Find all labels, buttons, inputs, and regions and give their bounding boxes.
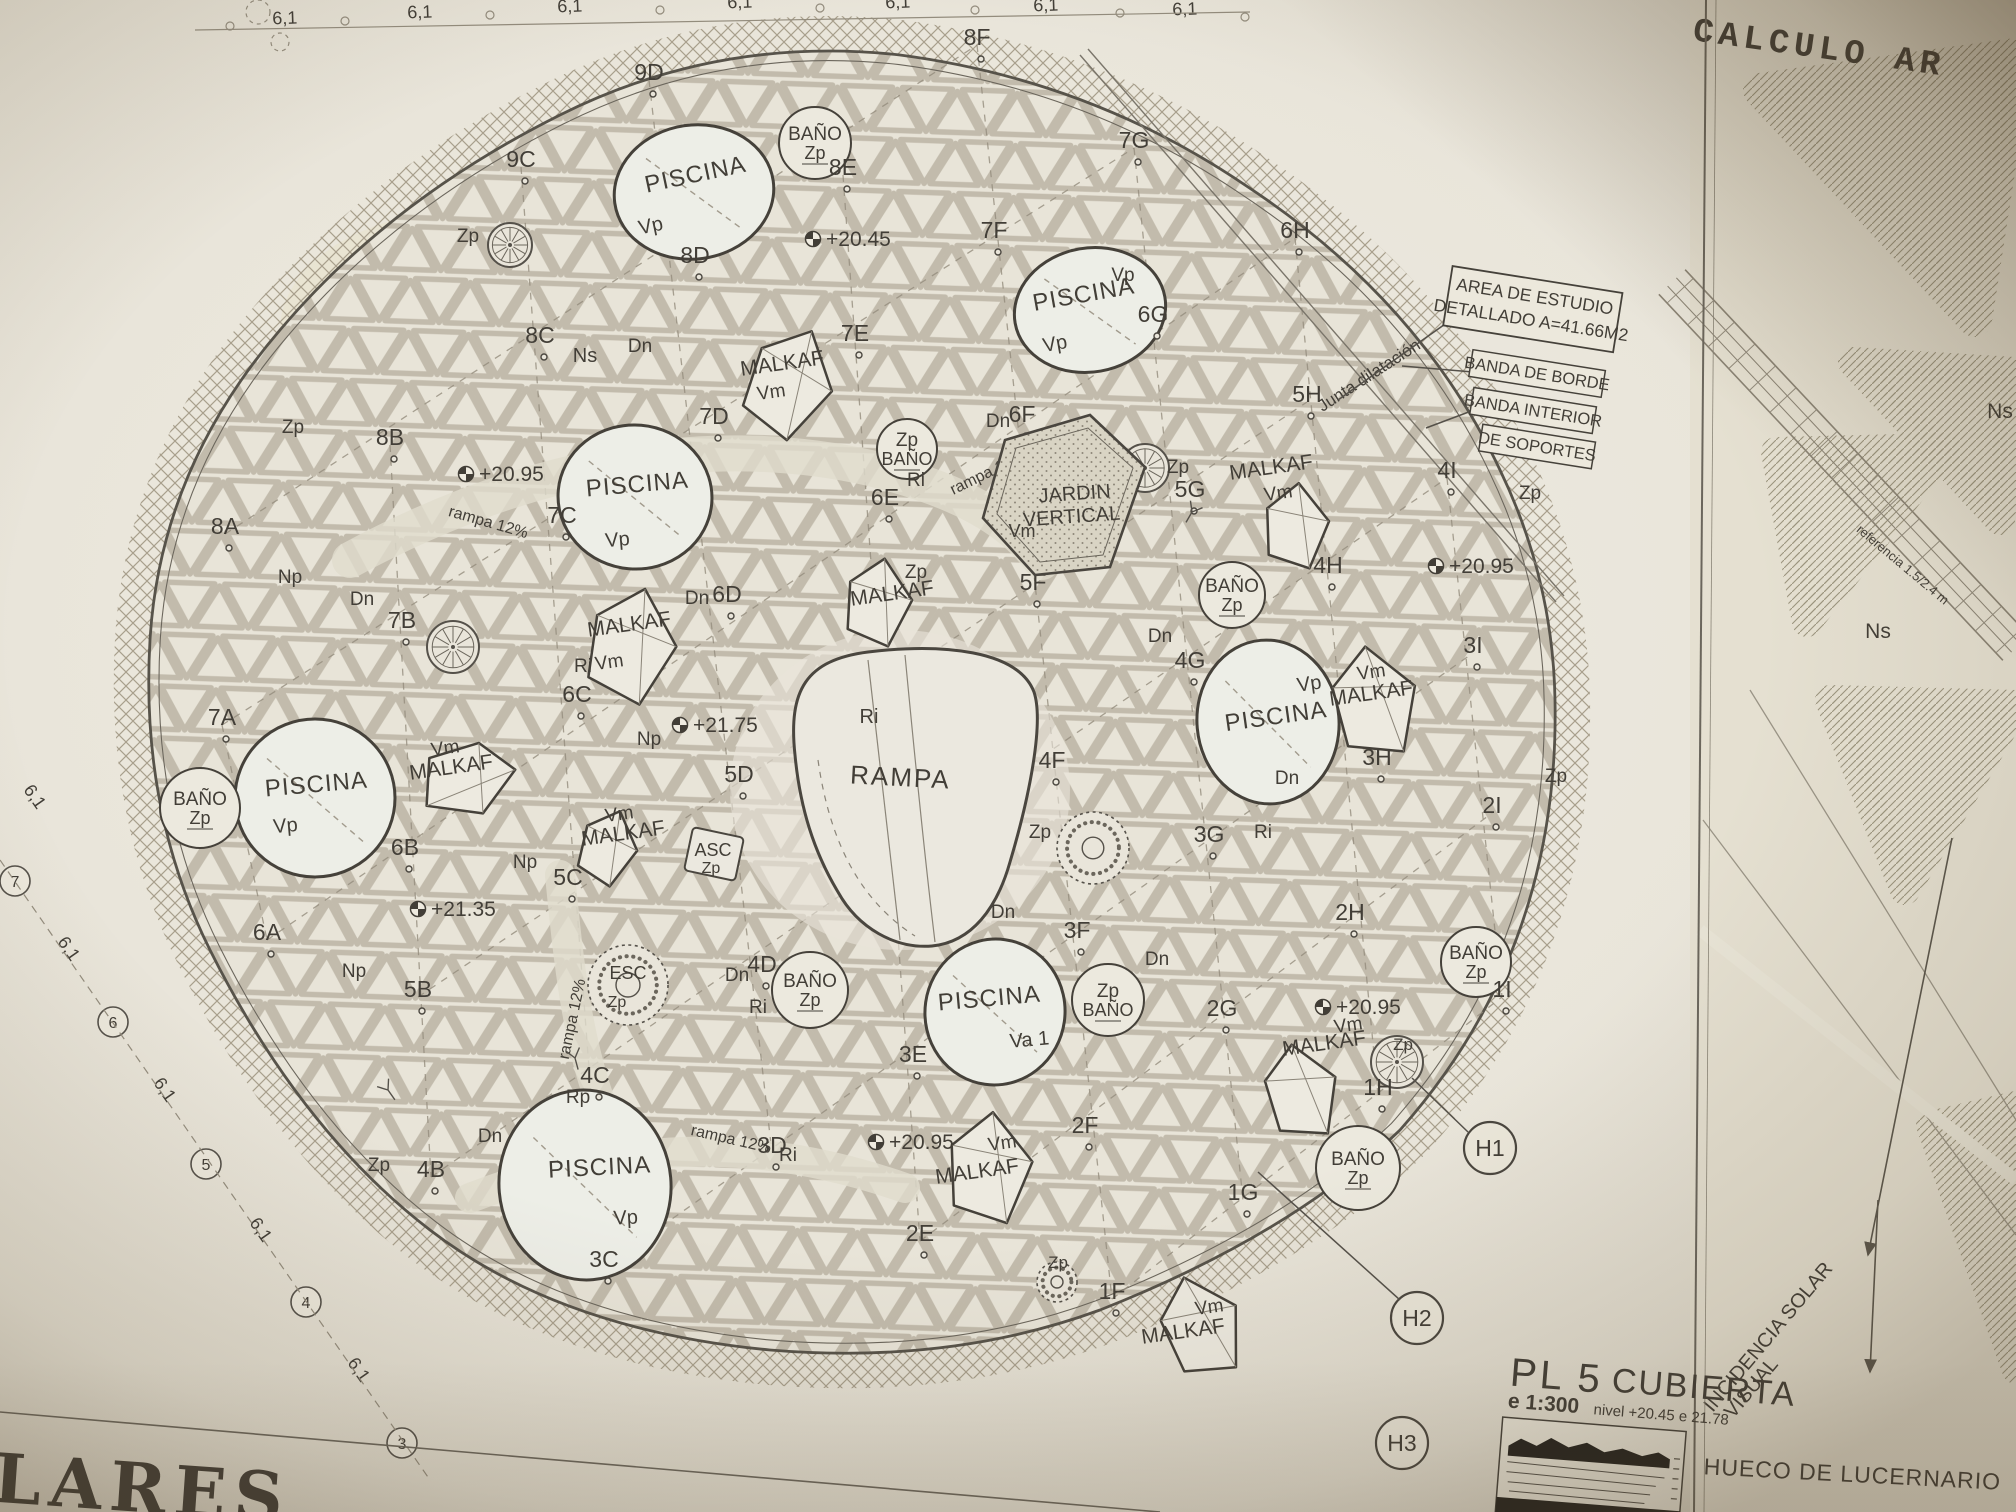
- code-note: Zp: [1029, 822, 1051, 843]
- grid-point-label: 2I: [1482, 792, 1501, 818]
- grid-point-dot: [696, 274, 702, 280]
- code-note: Zp: [368, 1155, 390, 1176]
- dimension-label: 6,1: [885, 0, 911, 12]
- right-detail-panel: CALCULO AR INCIDENCIA SOLAR VISUAL HUECO…: [1659, 0, 2016, 1512]
- code-note: Zp: [1545, 766, 1567, 787]
- level-value: +20.45: [826, 228, 891, 251]
- grid-point-label: 6D: [712, 581, 741, 607]
- bano-tag: BAÑO: [1082, 999, 1133, 1020]
- level-value: +21.75: [693, 714, 758, 737]
- h-marker: H3: [1376, 1417, 1428, 1469]
- malkaf-vm-tag: Vm: [1356, 660, 1387, 685]
- grid-point-dot: [391, 456, 397, 462]
- grid-point-dot: [522, 178, 528, 184]
- code-note: Zp: [1048, 1253, 1068, 1272]
- grid-axis-number: 5: [202, 1157, 211, 1174]
- code-note: Np: [637, 729, 661, 750]
- grid-point-label: 8B: [376, 424, 404, 450]
- plan-canvas: CALCULO AR INCIDENCIA SOLAR VISUAL HUECO…: [0, 0, 2016, 1512]
- h-marker-label: H3: [1387, 1430, 1416, 1456]
- bano-label: BAÑO: [1205, 575, 1259, 597]
- grid-point-label: 3G: [1194, 821, 1225, 847]
- grid-axis-bubble: 5: [191, 1149, 221, 1179]
- dotted-rosette-icon: [588, 945, 668, 1025]
- dimension-label: 6,1: [272, 8, 298, 29]
- grid-point-label: 9D: [634, 59, 663, 85]
- code-note: Np: [342, 961, 366, 982]
- code-note: Zp: [1393, 1035, 1413, 1054]
- code-note: Dn: [350, 589, 374, 610]
- grid-point-dot: [978, 56, 984, 62]
- pool-tag: Vp: [604, 528, 630, 552]
- pool-tag: Vp: [613, 1206, 639, 1229]
- grid-point-label: 7E: [841, 320, 869, 346]
- pool-tag: Vp: [1296, 671, 1323, 696]
- grid-point-label: 6E: [871, 484, 899, 510]
- dimension-tick: [1116, 9, 1124, 17]
- grid-point-label: 2G: [1207, 995, 1238, 1021]
- grid-point-label: 7F: [981, 217, 1008, 243]
- grid-point-dot: [1154, 333, 1160, 339]
- grid-point-label: 7D: [699, 403, 728, 429]
- esc-zp-tag: Zp: [608, 994, 627, 1011]
- grid-point-label: 6A: [253, 919, 282, 945]
- h-marker-label: H2: [1402, 1305, 1431, 1331]
- dimension-label: 6,1: [407, 2, 433, 23]
- grid-point-dot: [1329, 584, 1335, 590]
- grid-point-label: 6F: [1009, 401, 1036, 427]
- code-note: Ns: [1987, 400, 2013, 423]
- esc-label: ESC: [609, 963, 646, 983]
- dimension-tick: [656, 6, 664, 14]
- pool-tag: Vp: [1041, 331, 1069, 357]
- level-value: +20.95: [1449, 555, 1514, 578]
- dimension-label: 6,1: [1033, 0, 1059, 15]
- bano-tag: Zp: [1221, 595, 1242, 615]
- dimension-tick: [816, 4, 824, 12]
- grid-point-dot: [763, 983, 769, 989]
- dimension-tick: [486, 11, 494, 19]
- dimension-label: 6,1: [557, 0, 583, 16]
- grid-point-label: 8F: [964, 24, 991, 50]
- malkaf-vm-tag: Vm: [1263, 481, 1294, 506]
- grid-point-dot: [406, 866, 412, 872]
- code-note: Ri: [779, 1145, 797, 1166]
- grid-point-label: 4G: [1175, 647, 1206, 673]
- pool: PISCINAVp: [235, 719, 395, 877]
- code-note: Ri: [1254, 822, 1272, 843]
- level-value: +20.95: [1336, 996, 1401, 1019]
- malkaf-vm-tag: Vm: [1194, 1295, 1225, 1320]
- grid-point-dot: [268, 951, 274, 957]
- grid-axis-number: 3: [398, 1436, 407, 1453]
- sheet-scale: e 1:300: [1507, 1390, 1580, 1419]
- grid-point-dot: [650, 91, 656, 97]
- grid-point-dot: [419, 1008, 425, 1014]
- bano-label: Zp: [1097, 981, 1119, 1002]
- grid-point-dot: [223, 736, 229, 742]
- dimension-label: 6,1: [1172, 0, 1198, 19]
- grid-point-label: 4I: [1437, 457, 1456, 483]
- grid-point-label: 8C: [525, 322, 554, 348]
- pool-tag: Va 1: [1009, 1027, 1050, 1052]
- grid-point-label: 1G: [1228, 1179, 1259, 1205]
- dimension-tick: [341, 17, 349, 25]
- grid-point-label: 4H: [1313, 552, 1342, 578]
- dimension-tick: [226, 22, 234, 30]
- dotted-rosette-icon: [1057, 812, 1129, 884]
- grid-point-dot: [1086, 1144, 1092, 1150]
- grid-axis-bubble: 3: [387, 1428, 417, 1458]
- grid-point-dot: [1493, 824, 1499, 830]
- grid-point-dot: [844, 186, 850, 192]
- grid-point-label: 4C: [580, 1062, 609, 1088]
- grid-point-label: 5D: [724, 761, 753, 787]
- grid-point-dot: [1244, 1211, 1250, 1217]
- bano-tag: Zp: [1465, 962, 1486, 982]
- grid-point-dot: [1113, 1310, 1119, 1316]
- grid-point-dot: [995, 249, 1001, 255]
- code-note: Dn: [1145, 949, 1169, 970]
- grid-point-label: 7B: [388, 607, 416, 633]
- code-note: Dn: [685, 588, 709, 609]
- grid-point-dot: [1351, 931, 1357, 937]
- wheel-rosette-icon: [427, 621, 479, 673]
- bano-tag: Zp: [189, 808, 210, 828]
- jardin-vm-tag: Vm: [1009, 521, 1036, 541]
- grid-point-dot: [1223, 1027, 1229, 1033]
- code-note: Np: [278, 567, 302, 588]
- code-note: Rp: [566, 1087, 590, 1108]
- grid-point-dot: [1135, 159, 1141, 165]
- code-note: Zp: [457, 226, 479, 247]
- malkaf-vm-tag: Vm: [594, 650, 625, 675]
- code-note: Dn: [725, 965, 749, 986]
- grid-point-dot: [432, 1188, 438, 1194]
- malkaf-vm-tag: Vm: [756, 380, 787, 405]
- rampa-label: RAMPA: [849, 759, 951, 794]
- level-value: +21.35: [431, 898, 496, 921]
- asc-feature: ASC Zp: [684, 827, 744, 881]
- dimension-tick: [1241, 13, 1249, 21]
- grid-point-label: 7G: [1119, 127, 1150, 153]
- dimension-label: 6,1: [150, 1074, 181, 1106]
- grid-point-dot: [914, 1073, 920, 1079]
- grid-point-label: 3I: [1463, 632, 1482, 658]
- grid-point-label: 5C: [553, 864, 582, 890]
- grid-point-dot: [1308, 413, 1314, 419]
- grid-point-label: 1F: [1099, 1278, 1126, 1304]
- grid-point-label: 6C: [562, 681, 591, 707]
- grid-point-dot: [1210, 853, 1216, 859]
- bano: BAÑOZp: [1199, 562, 1265, 628]
- bano-tag: BAÑO: [881, 448, 932, 469]
- sheet-title-partial: LARES: [0, 1439, 294, 1512]
- grid-point-label: 4D: [747, 951, 776, 977]
- grid-point-label: 3E: [899, 1041, 927, 1067]
- grid-point-dot: [1448, 489, 1454, 495]
- grid-point-label: 1I: [1492, 976, 1511, 1002]
- dimension-label: 6,1: [54, 933, 85, 965]
- grid-point-dot: [1078, 949, 1084, 955]
- grid-point-label: 2H: [1335, 899, 1364, 925]
- bano-label: BAÑO: [1449, 942, 1503, 964]
- code-note: Dn: [991, 902, 1015, 923]
- grid-point-dot: [578, 713, 584, 719]
- code-note: Dn: [1275, 768, 1299, 789]
- grid-point-label: 6G: [1138, 301, 1169, 327]
- grid-point-label: 2E: [906, 1220, 934, 1246]
- grid-point-label: 5G: [1175, 476, 1206, 502]
- grid-point-dot: [728, 613, 734, 619]
- grid-point-dot: [1053, 779, 1059, 785]
- code-note: Ns: [1865, 620, 1891, 643]
- bano-label: BAÑO: [788, 123, 842, 145]
- level-value: +20.95: [889, 1131, 954, 1154]
- grid-point-dot: [1034, 601, 1040, 607]
- grid-point-dot: [541, 354, 547, 360]
- code-note: Zp: [1167, 457, 1189, 478]
- bano-label: BAÑO: [1331, 1148, 1385, 1170]
- code-note: Ri: [574, 656, 592, 677]
- grid-point-dot: [921, 1252, 927, 1258]
- grid-point-label: 8E: [829, 154, 857, 180]
- grid-point-dot: [1474, 664, 1480, 670]
- photographed-architectural-sheet: CALCULO AR INCIDENCIA SOLAR VISUAL HUECO…: [0, 0, 2016, 1512]
- grid-point-label: 4F: [1039, 747, 1066, 773]
- grid-point-label: 3C: [589, 1246, 618, 1272]
- code-note: Ri: [907, 470, 925, 491]
- grid-point-dot: [403, 639, 409, 645]
- bano-label: Zp: [896, 430, 918, 451]
- code-note: Ns: [573, 345, 597, 367]
- code-note: Vp: [1111, 265, 1134, 286]
- bano-label: BAÑO: [173, 788, 227, 810]
- code-note: Zp: [905, 562, 927, 583]
- pool-tag: Vp: [272, 814, 298, 838]
- grid-point-dot: [569, 896, 575, 902]
- grid-point-dot: [740, 793, 746, 799]
- code-note: Np: [513, 852, 537, 873]
- grid-point-dot: [226, 545, 232, 551]
- section-thumbnail: [1495, 1417, 1686, 1512]
- grid-point-dot: [886, 516, 892, 522]
- code-note: Zp: [282, 417, 304, 438]
- grid-point-dot: [596, 1094, 602, 1100]
- code-note: Dn: [986, 411, 1010, 432]
- code-note: Ri: [749, 997, 767, 1018]
- dimension-tick: [971, 6, 979, 14]
- grid-point-dot: [1296, 249, 1302, 255]
- rampa-ri-label: Ri: [860, 706, 879, 728]
- malkaf-vm-tag: Vm: [430, 736, 461, 761]
- grid-point-label: 1H: [1363, 1074, 1392, 1100]
- grid-point-dot: [715, 435, 721, 441]
- dimension-label: 6,1: [727, 0, 753, 12]
- grid-point-label: 3F: [1064, 917, 1091, 943]
- pool-label: PISCINA: [547, 1151, 651, 1183]
- bano-tag: Zp: [799, 990, 820, 1010]
- grid-point-dot: [605, 1278, 611, 1284]
- malkaf-vm-tag: Vm: [604, 802, 635, 827]
- grid-point-label: 7A: [208, 704, 237, 730]
- dimension-label: 6,1: [246, 1214, 277, 1246]
- asc-label: ASC: [694, 840, 731, 860]
- code-note: Zp: [1519, 483, 1541, 504]
- h-marker-label: H1: [1475, 1135, 1504, 1161]
- grid-point-dot: [856, 352, 862, 358]
- code-note: Dn: [478, 1126, 502, 1147]
- bano-label: BAÑO: [783, 970, 837, 992]
- grid-point-dot: [1191, 679, 1197, 685]
- grid-point-label: 6B: [391, 834, 419, 860]
- bano: ZpBAÑO: [1072, 964, 1144, 1036]
- grid-point-label: 9C: [506, 146, 535, 172]
- grid-point-label: 3H: [1362, 744, 1391, 770]
- bano: BAÑOZp: [1316, 1126, 1400, 1210]
- bano-tag: Zp: [804, 143, 825, 163]
- bano-tag: Zp: [1347, 1168, 1368, 1188]
- grid-point-dot: [1503, 1008, 1509, 1014]
- grid-point-label: 5B: [404, 976, 432, 1002]
- bano: BAÑOZp: [772, 952, 848, 1028]
- dimension-label: 6,1: [20, 781, 51, 813]
- code-note: Dn: [628, 336, 652, 357]
- malkaf-vm-tag: Vm: [987, 1131, 1018, 1156]
- grid-point-dot: [1378, 776, 1384, 782]
- grid-point-label: 7C: [547, 502, 576, 528]
- grid-point-dot: [563, 534, 569, 540]
- h-marker: H1: [1464, 1122, 1516, 1174]
- dimension-label: 6,1: [344, 1354, 375, 1386]
- grid-point-label: 8A: [211, 513, 240, 539]
- grid-point-label: 4B: [417, 1156, 445, 1182]
- bano: BAÑOZp: [160, 768, 240, 848]
- grid-point-label: 2F: [1072, 1112, 1099, 1138]
- grid-point-dot: [1379, 1106, 1385, 1112]
- grid-point-label: 6H: [1280, 217, 1309, 243]
- grid-point-label: 8D: [680, 242, 709, 268]
- wheel-rosette-icon: [488, 223, 532, 267]
- grid-axis-bubble: 7: [0, 866, 30, 896]
- code-note: Dn: [1148, 626, 1172, 647]
- level-value: +20.95: [479, 463, 544, 486]
- asc-zp-tag: Zp: [702, 860, 721, 877]
